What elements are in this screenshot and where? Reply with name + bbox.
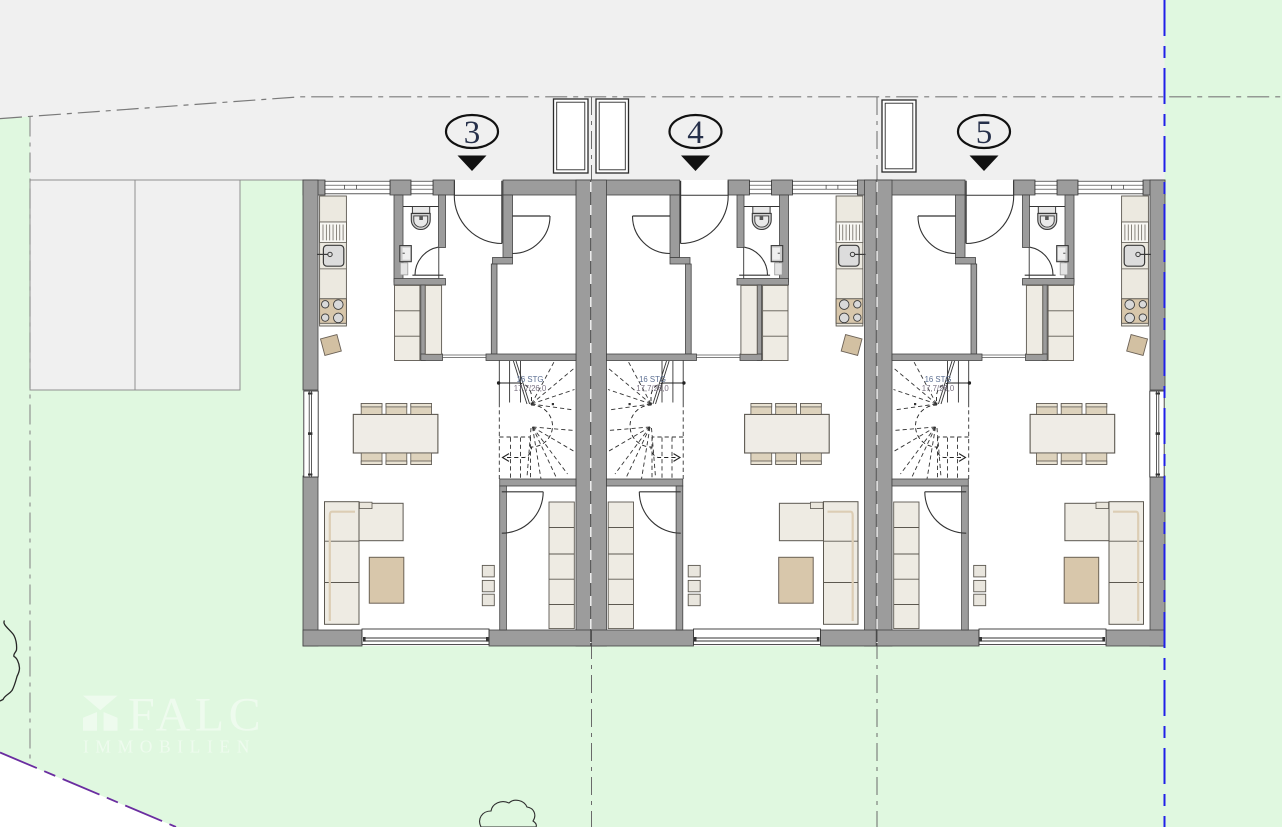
svg-text:17,7/26,0: 17,7/26,0 [922,384,955,393]
svg-text:16 STG: 16 STG [639,375,666,384]
svg-text:FALC: FALC [128,689,265,742]
svg-text:IMMOBILIEN: IMMOBILIEN [83,737,256,757]
svg-text:16 STG: 16 STG [517,375,544,384]
svg-text:17,7/26,0: 17,7/26,0 [514,384,547,393]
svg-text:5: 5 [976,115,993,151]
svg-text:17,7/26,0: 17,7/26,0 [636,384,669,393]
svg-text:4: 4 [687,115,704,151]
svg-text:16 STG: 16 STG [925,375,952,384]
svg-text:3: 3 [464,115,481,151]
